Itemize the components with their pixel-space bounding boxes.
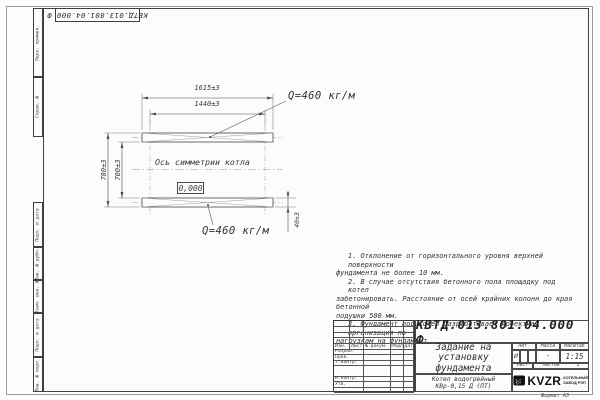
tb-document-title: Задание на установку фундамента (415, 343, 512, 374)
strip-podp-data-2: Подп. и дата (33, 313, 43, 357)
tb-designation: КВТД.013.801.04.000 Ф (415, 320, 589, 343)
strip-vzam-inv: Взам. инв. № (33, 280, 43, 313)
format-label: Формат А3 (541, 393, 569, 399)
strip-inv-dubl: Инв. № дубл. (33, 247, 43, 280)
top-doc-number-box: КВТД.013.801.04.000 Ф (55, 8, 140, 22)
strip-perv-primen: Перв. примен. (33, 8, 43, 77)
dim-overall-width: 1615±3 (194, 84, 219, 92)
dim-pad-thickness: 40±3 (293, 212, 301, 227)
kvzr-logo-text: KVZR (527, 374, 561, 388)
note-line: фундамента не более 10 мм. (336, 269, 580, 278)
drawing-sheet: КВТД.013.801.04.000 Ф Перв. примен. Спра… (0, 0, 600, 400)
elevation-mark: 0,000 (177, 182, 204, 194)
tb-lit-cell-3 (528, 350, 536, 363)
top-doc-number: КВТД.013.801.04.000 Ф (47, 11, 148, 20)
tb-sheets-value: 1 (577, 363, 580, 368)
note-line: 2. В случае отсутствия бетонного пола пл… (336, 278, 580, 295)
strip-sprav-no: Справ. № (33, 77, 43, 137)
load-label-bottom: Q=460 кг/м (202, 225, 269, 237)
dim-inner-width: 1440±3 (194, 100, 219, 108)
strip-inv-podl: Инв. № подл. (33, 357, 43, 392)
tb-company-cell: KVZR КОТЕЛЬНЫЙ ЗАВОД РЭП (512, 369, 589, 392)
strip-podp-data-1: Подп. и дата (33, 202, 43, 247)
title-block-signatures: Изм. Лист № докум. Подп. Дата Разраб. Пр… (333, 320, 415, 392)
kvzr-subtitle: КОТЕЛЬНЫЙ ЗАВОД РЭП (563, 376, 588, 385)
note-line: 1. Отклонение от горизонтального уровня … (336, 252, 580, 269)
elevation-value: 0,000 (178, 184, 202, 193)
tb-lit-cell-2 (520, 350, 528, 363)
note-line: забетонировать. Расстояние от осей крайн… (336, 295, 580, 312)
kvzr-logo-icon (513, 374, 525, 387)
tb-scale-value: 1:15 (560, 350, 589, 363)
dim-inner-height: 700±3 (114, 159, 122, 180)
tb-mass-value: - (536, 350, 560, 363)
dim-outer-height: 780±3 (100, 159, 108, 180)
symmetry-axis-label: Ось симметрии котла (155, 157, 250, 167)
tb-product-name: Котел водогрейный КВр-0,15 Д (ПТ) (415, 374, 512, 392)
load-label-top: Q=460 кг/м (288, 90, 355, 102)
tb-lit-value: И (512, 350, 520, 363)
